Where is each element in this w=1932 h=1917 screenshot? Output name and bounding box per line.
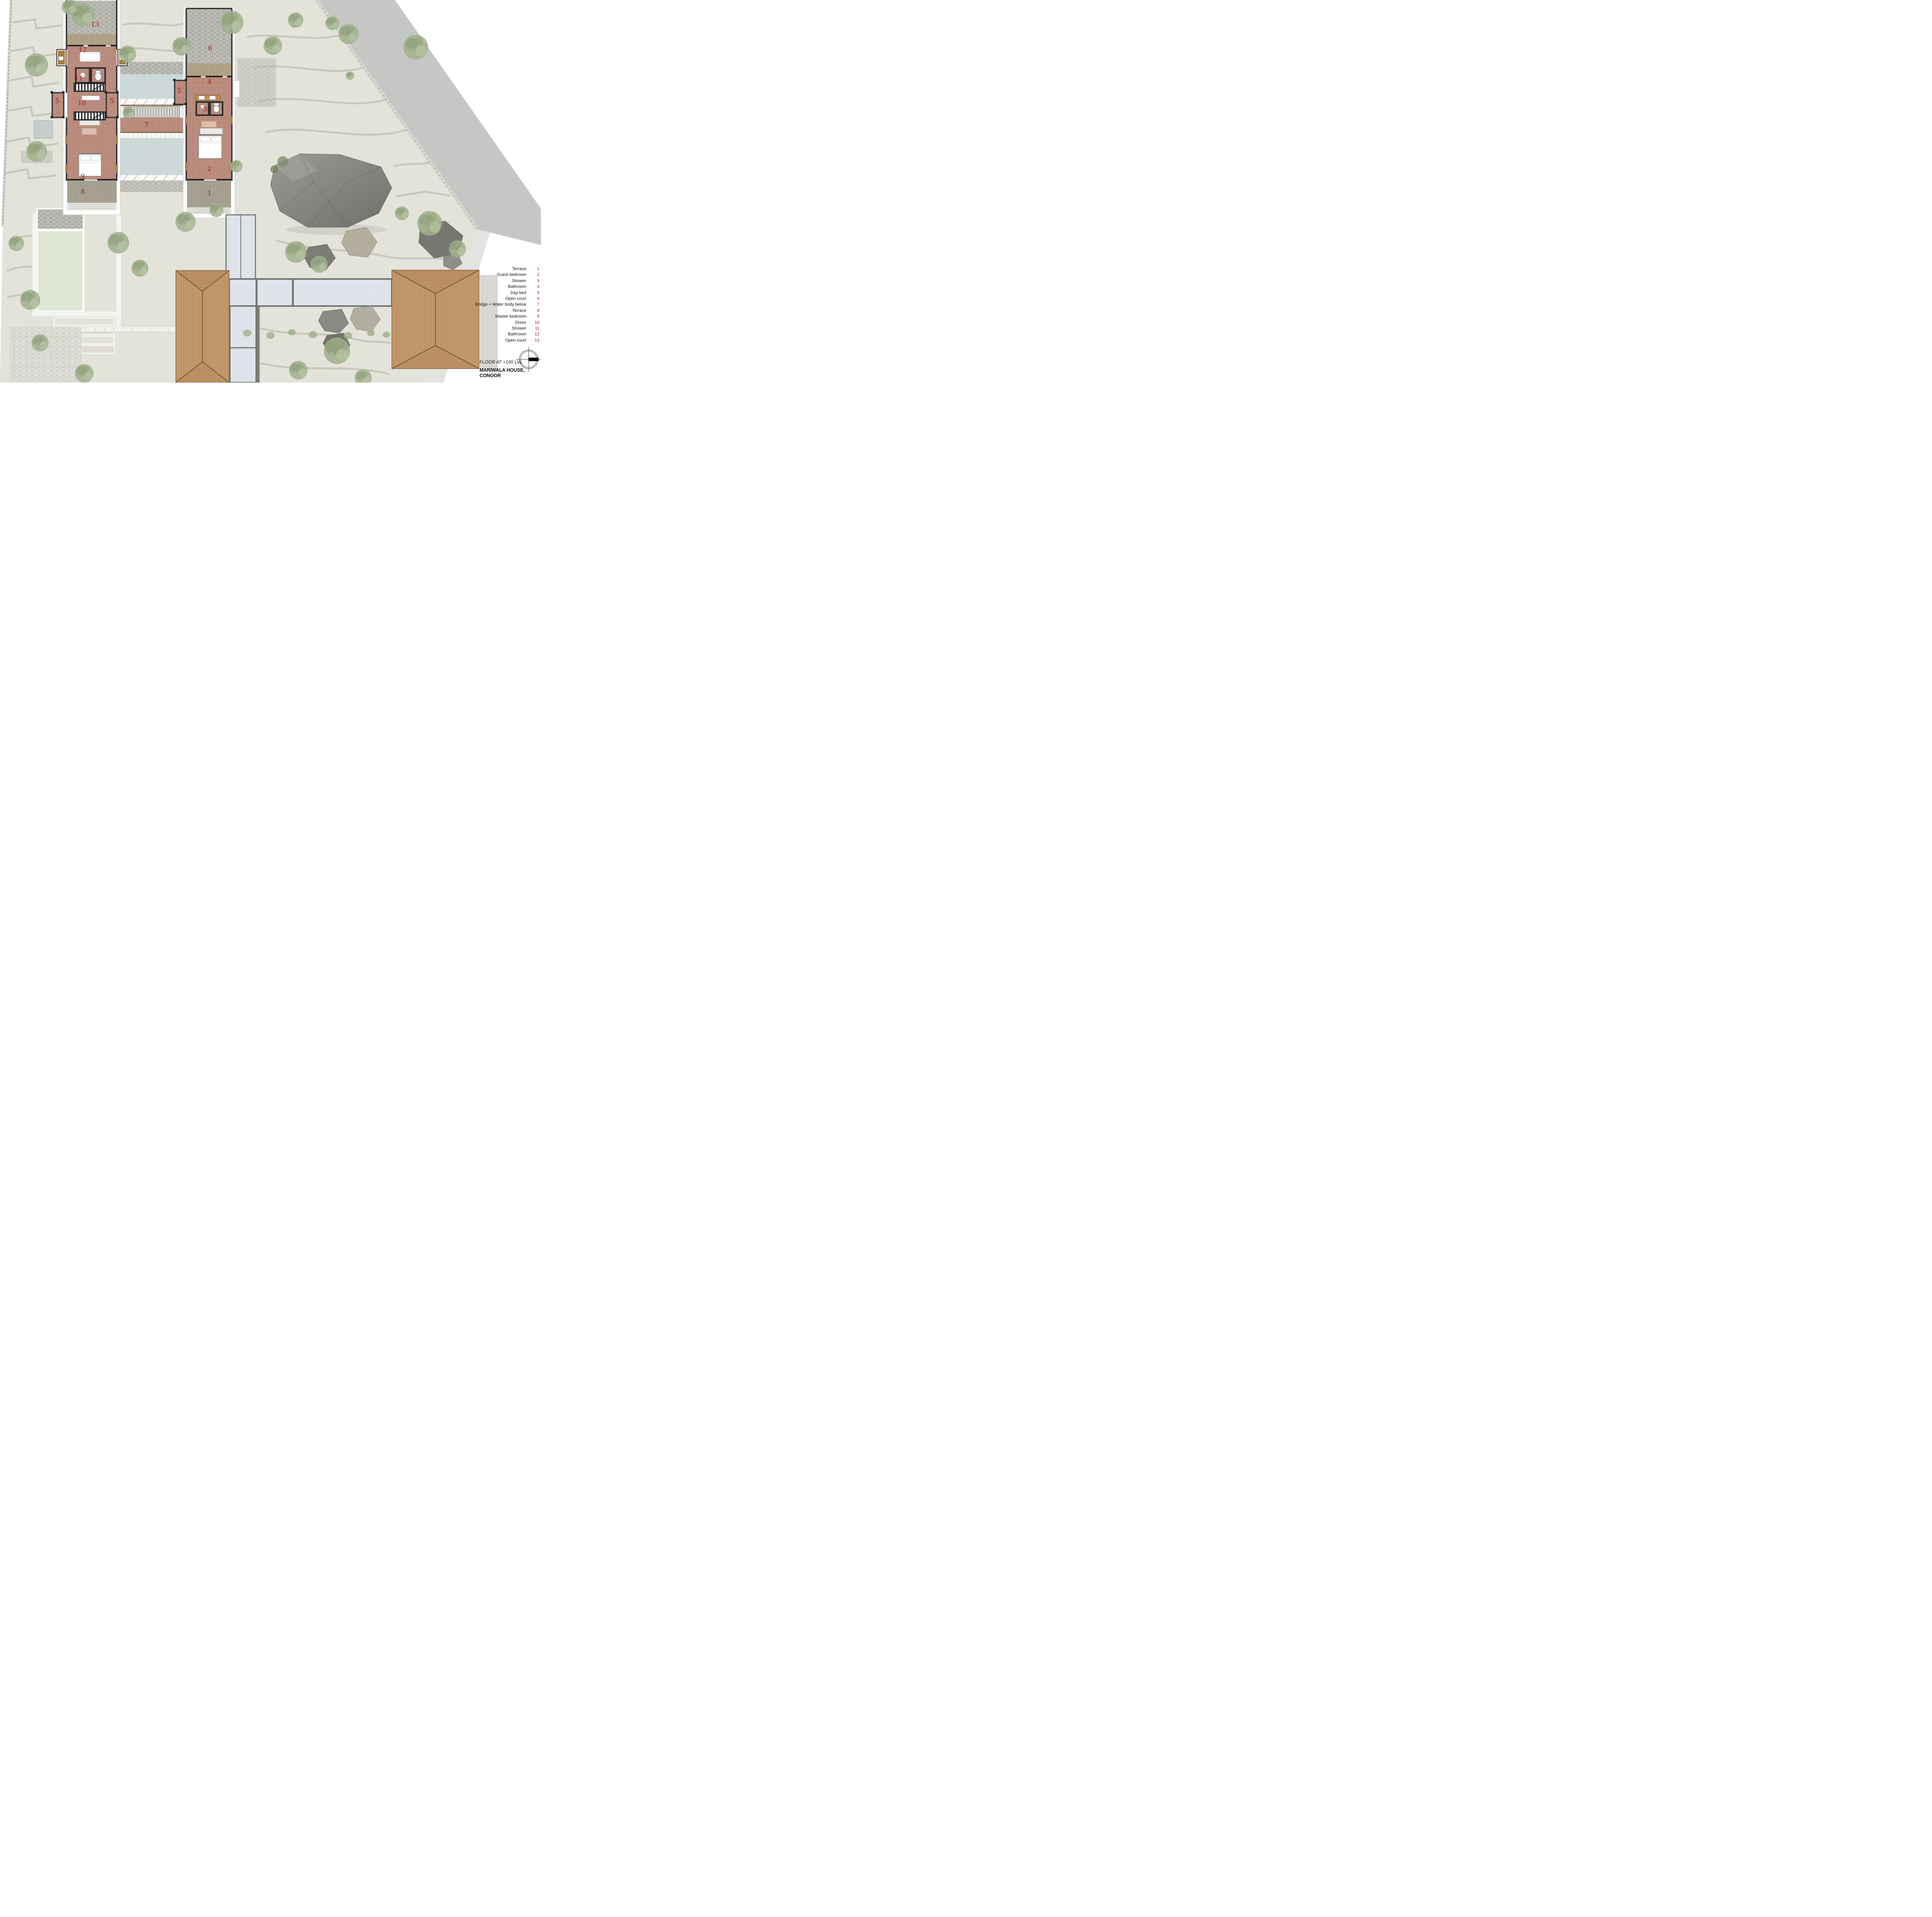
legend-label: Day bed xyxy=(510,291,526,295)
legend-row: Shower11 xyxy=(475,326,539,332)
room-marker-day-bed-middle: 5 xyxy=(177,88,182,95)
room-legend: Terrace1 Guest bedroom2 Shower3 Bathroom… xyxy=(475,267,539,344)
legend-number: 1 xyxy=(531,267,539,271)
deck-6 xyxy=(187,63,231,77)
legend-row: Terrace1 xyxy=(475,267,539,272)
glass-corridor-horizontal xyxy=(229,279,392,306)
roof-east xyxy=(392,270,479,369)
legend-label: Open court xyxy=(505,338,526,343)
legend-number: 3 xyxy=(531,279,539,283)
bridge-deck xyxy=(120,118,183,132)
room-marker-day-bed-west: 5 xyxy=(55,98,60,105)
room-marker-terrace-8: 8 xyxy=(81,189,85,196)
path-south-of-lawn xyxy=(32,311,121,316)
legend-number: 4 xyxy=(531,284,539,289)
wardrobe-south xyxy=(74,112,105,120)
stone-patch-east xyxy=(237,58,276,107)
legend-number: 9 xyxy=(531,314,539,319)
water-court xyxy=(120,62,183,192)
legend-row: Shower3 xyxy=(475,279,539,284)
bench xyxy=(80,121,100,125)
room-marker-dress-10: 10 xyxy=(78,100,86,107)
room-marker-master-bedroom-9: 9 xyxy=(81,174,85,180)
legend-label: Guest bedroom xyxy=(497,272,526,277)
pool-lower xyxy=(120,138,183,175)
roof-west xyxy=(176,270,229,383)
terrace-8 xyxy=(67,180,117,203)
legend-label: Dress xyxy=(515,320,526,325)
toilet-3 xyxy=(214,103,219,112)
legend-number: 7 xyxy=(531,302,539,307)
legend-number: 6 xyxy=(531,296,539,301)
legend-number: 5 xyxy=(531,291,539,295)
room-marker-terrace-1: 1 xyxy=(207,190,212,197)
legend-row: Bridge + Water body below7 xyxy=(475,302,539,308)
legend-row: Open court13 xyxy=(475,338,539,344)
legend-label: Terrace xyxy=(512,308,526,313)
legend-row: Terrace8 xyxy=(475,308,539,314)
floor-level-label: FLOOR AT +100 LVL xyxy=(480,360,541,365)
walk-to-roof xyxy=(81,327,176,332)
legend-row: Day bed5 xyxy=(475,291,539,296)
pool-upper xyxy=(120,74,183,99)
terrace-8-steps xyxy=(67,203,117,210)
terrace-1-steps xyxy=(187,208,231,214)
room-marker-bathroom-4: 4 xyxy=(207,79,212,85)
wardrobe-north xyxy=(74,83,105,91)
cobble-strip-south xyxy=(120,180,183,192)
legend-row: Master bedroom9 xyxy=(475,314,539,320)
legend-row: Bathroom4 xyxy=(475,284,539,290)
legend-label: Master bedroom xyxy=(495,314,526,319)
room-marker-open-court-13: 13 xyxy=(91,22,99,28)
legend-number: 10 xyxy=(531,320,539,325)
legend-row: Bathroom12 xyxy=(475,332,539,338)
project-title: MARIWALA HOUSE, CONOOR xyxy=(480,367,541,378)
room-marker-bridge-7: 7 xyxy=(145,122,149,129)
bridge-edge-south xyxy=(120,132,183,133)
vanity-4 xyxy=(196,95,220,100)
water-tank xyxy=(34,121,53,138)
legend-number: 2 xyxy=(531,272,539,277)
glass-corridor-south xyxy=(230,306,256,383)
title-block: FLOOR AT +100 LVL MARIWALA HOUSE, CONOOR xyxy=(480,360,541,378)
legend-label: Shower xyxy=(512,279,526,283)
lawn xyxy=(37,230,83,311)
legend-label: Terrace xyxy=(512,267,526,271)
room-marker-guest-bedroom-2: 2 xyxy=(207,166,212,173)
legend-label: Bridge + Water body below xyxy=(475,302,526,307)
niche-east xyxy=(233,80,240,97)
deck-13 xyxy=(67,34,117,46)
room-marker-open-court-6: 6 xyxy=(208,46,213,52)
room-marker-shower-3: 3 xyxy=(203,107,207,113)
rug-2 xyxy=(202,121,216,127)
toilet-11 xyxy=(95,71,101,80)
legend-row: Open court6 xyxy=(475,296,539,302)
sofa xyxy=(200,128,223,134)
room-marker-shower-11: 11 xyxy=(75,76,83,82)
legend-label: Open court xyxy=(505,296,526,301)
door-alcove-west xyxy=(57,49,66,66)
room-marker-bathroom-12: 12 xyxy=(78,47,87,54)
legend-row: Guest bedroom2 xyxy=(475,272,539,278)
legend-row: Dress10 xyxy=(475,320,539,326)
paved-patio xyxy=(10,327,81,383)
legend-number: 8 xyxy=(531,308,539,313)
room-marker-day-bed-east: 5 xyxy=(110,98,114,105)
legend-label: Shower xyxy=(512,326,526,331)
legend-number: 13 xyxy=(531,338,539,343)
legend-label: Bathroom xyxy=(508,284,526,289)
legend-number: 11 xyxy=(531,326,539,331)
floor-plan-sheet: 13 12 11 5 5 10 9 8 6 5 4 3 7 2 1 Terrac… xyxy=(0,0,541,383)
rug-9 xyxy=(82,128,97,134)
corridor-edge-wall xyxy=(257,306,260,383)
cobble-strip-north xyxy=(120,62,183,74)
legend-number: 12 xyxy=(531,332,539,337)
legend-label: Bathroom xyxy=(508,332,526,337)
guest-bed xyxy=(199,135,222,158)
